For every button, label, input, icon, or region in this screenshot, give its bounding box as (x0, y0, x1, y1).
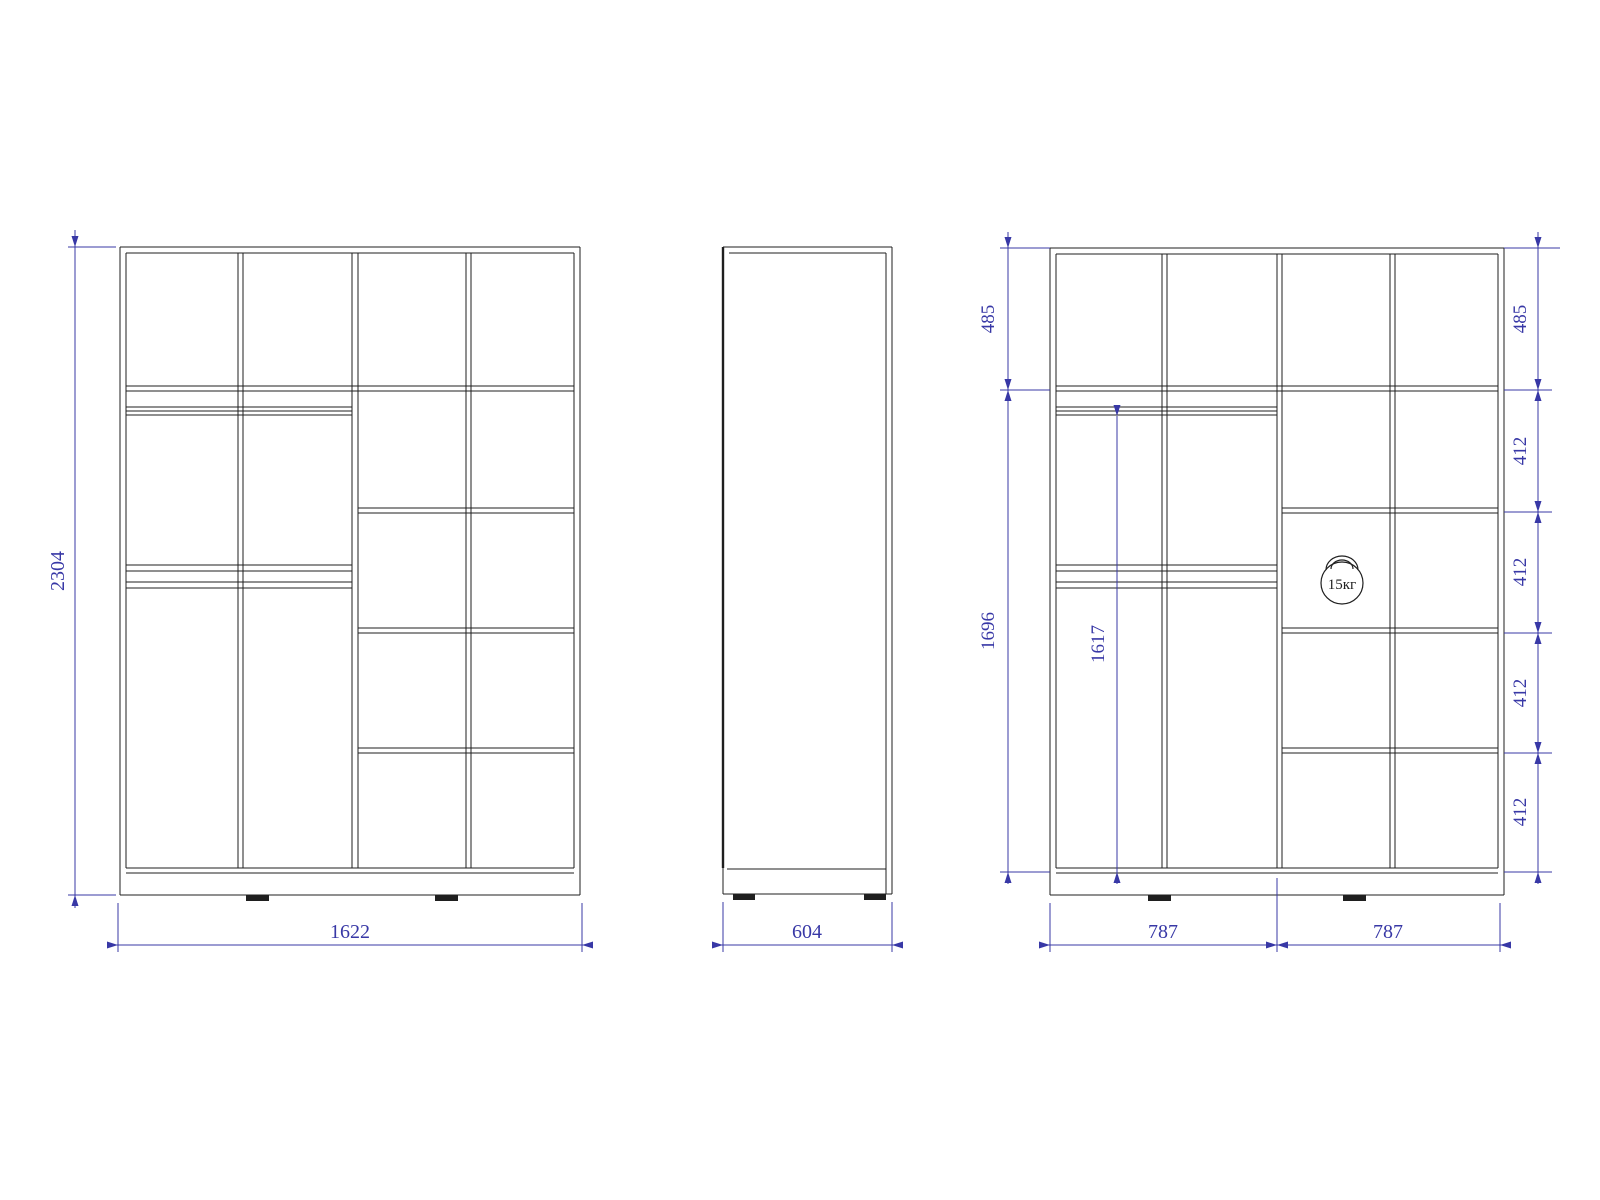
dim-depth: 604 (792, 921, 822, 943)
dim-shelf-spacing-2: 412 (1510, 558, 1531, 587)
side-view (723, 247, 892, 900)
dim-left-interior-height: 1696 (978, 612, 999, 650)
dim-shelf-spacing-4: 412 (1510, 798, 1531, 827)
internal-foot-right (1343, 895, 1366, 901)
internal-foot-left (1148, 895, 1171, 901)
dimension-arrows (72, 236, 1542, 949)
dim-overall-width: 1622 (330, 921, 370, 943)
dim-half-width-left: 787 (1148, 921, 1178, 943)
dim-shelf-spacing-1: 412 (1510, 437, 1531, 466)
dim-overall-height: 2304 (47, 551, 69, 591)
front-foot-left (246, 895, 269, 901)
internal-carcass (1050, 248, 1504, 895)
front-foot-right (435, 895, 458, 901)
front-carcass (120, 247, 580, 895)
side-foot-front (733, 894, 755, 900)
front-view (120, 247, 580, 901)
dim-shelf-spacing-3: 412 (1510, 679, 1531, 708)
dim-rod-height: 1617 (1088, 625, 1109, 663)
shelf-load-label: 15кг (1328, 577, 1356, 593)
drawing-canvas: 15кг (0, 0, 1600, 1200)
kettlebell-icon: 15кг (1321, 556, 1363, 604)
wardrobe-drawing: 15кг (0, 0, 1600, 1200)
dim-half-width-right: 787 (1373, 921, 1403, 943)
dim-right-top-section: 485 (1510, 305, 1531, 334)
side-carcass (723, 247, 892, 894)
dim-left-top-section: 485 (978, 305, 999, 334)
side-foot-back (864, 894, 886, 900)
internal-view: 15кг (1050, 248, 1504, 901)
